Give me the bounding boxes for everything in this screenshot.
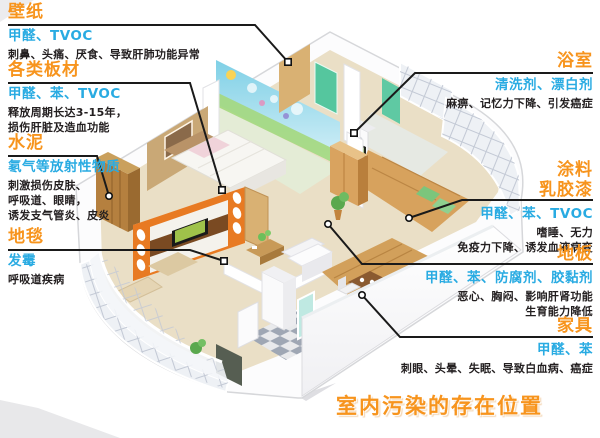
callout-carpet-heading: 地毯 (8, 227, 65, 247)
callout-bathroom-pollutants: 清洗剂、漂白剂 (446, 77, 593, 93)
callout-cement-heading: 水泥 (8, 133, 120, 153)
callout-boards-symptom-1: 释放周期长达3-15年， (8, 106, 127, 119)
callout-floor-pollutants: 甲醛、苯、防腐剂、胶黏剂 (425, 270, 593, 286)
callout-carpet-symptom: 呼吸道疾病 (8, 273, 65, 286)
callout-carpet-pollutants: 发霉 (8, 253, 65, 269)
callout-boards-pollutants: 甲醛、苯、TVOC (8, 86, 127, 102)
callout-cement-symptom-3: 诱发支气管炎、皮炎 (8, 209, 120, 222)
callout-carpet: 地毯 发霉 呼吸道疾病 (8, 227, 65, 286)
callout-furniture-symptom: 刺眼、头晕、失眠、导致白血病、癌症 (401, 362, 593, 375)
callout-cement-pollutants: 氡气等放射性物质 (8, 159, 120, 175)
page-title: 室内污染的存在位置 (336, 390, 543, 420)
callout-paint: 涂料 乳胶漆 甲醛、苯、TVOC 嗜睡、无力 免疫力下降、诱发血液病变 (457, 160, 593, 254)
callout-cement: 水泥 氡气等放射性物质 刺激损伤皮肤、 呼吸道、眼睛， 诱发支气管炎、皮炎 (8, 133, 120, 222)
callout-bathroom-symptom: 麻痹、记忆力下降、引发癌症 (446, 97, 593, 110)
callout-wallpaper-heading: 壁纸 (8, 2, 200, 22)
callout-marker-boards (219, 187, 225, 193)
callout-floor: 地板 甲醛、苯、防腐剂、胶黏剂 恶心、胸闷、影响肝肾功能 生育能力降低 (425, 244, 593, 318)
callout-bathroom-heading: 浴室 (446, 51, 593, 71)
callout-bathroom: 浴室 清洗剂、漂白剂 麻痹、记忆力下降、引发癌症 (446, 51, 593, 110)
callout-furniture-pollutants: 甲醛、苯 (401, 342, 593, 358)
callout-wallpaper: 壁纸 甲醛、TVOC 刺鼻、头痛、厌食、导致肝肺功能异常 (8, 2, 200, 61)
callout-paint-heading-2: 乳胶漆 (457, 180, 593, 200)
callout-boards: 各类板材 甲醛、苯、TVOC 释放周期长达3-15年， 损伤肝脏及造血功能 (8, 60, 127, 134)
callout-floor-heading: 地板 (425, 244, 593, 264)
callout-marker-bathroom (351, 130, 357, 136)
callout-marker-carpet (221, 258, 227, 264)
callout-paint-heading-1: 涂料 (457, 160, 593, 180)
callout-cement-symptom-2: 呼吸道、眼睛， (8, 194, 120, 207)
callout-paint-symptom-1: 嗜睡、无力 (457, 226, 593, 239)
tv-side-cabinet (245, 187, 268, 250)
callout-boards-heading: 各类板材 (8, 60, 127, 80)
ground-shadow-bottom-left (0, 400, 120, 438)
callout-furniture-heading: 家具 (401, 316, 593, 336)
callout-furniture: 家具 甲醛、苯 刺眼、头晕、失眠、导致白血病、癌症 (401, 316, 593, 375)
callout-floor-symptom-1: 恶心、胸闷、影响肝肾功能 (425, 290, 593, 303)
callout-marker-furniture (359, 292, 365, 298)
callout-wallpaper-pollutants: 甲醛、TVOC (8, 28, 200, 44)
infographic-indoor-pollution: 壁纸 甲醛、TVOC 刺鼻、头痛、厌食、导致肝肺功能异常 各类板材 甲醛、苯、T… (0, 0, 600, 438)
callout-marker-wallpaper (285, 59, 291, 65)
callout-marker-floor (325, 221, 331, 227)
callout-paint-pollutants: 甲醛、苯、TVOC (457, 206, 593, 222)
callout-cement-symptom-1: 刺激损伤皮肤、 (8, 179, 120, 192)
callout-marker-paint (406, 215, 412, 221)
